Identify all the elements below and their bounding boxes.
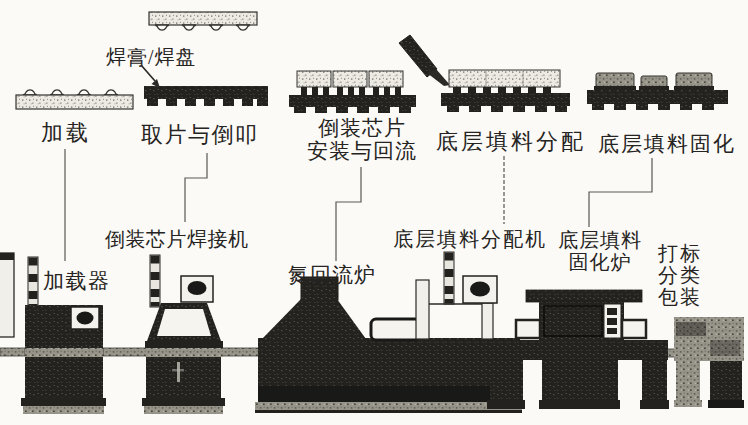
machine-cure-oven-art	[487, 290, 669, 409]
edge-structure-art	[0, 253, 14, 337]
connector-pick-flip	[185, 153, 207, 222]
machine-loader-label: 加载器	[43, 267, 111, 295]
board-flipped-chip-art	[149, 12, 257, 30]
board-mount-reflow-art	[289, 71, 416, 113]
callout-solder-paste-pad-label: 焊膏/焊盘	[106, 44, 197, 71]
bonder-signal-tower-icon	[150, 255, 160, 307]
step-loading-label: 加载	[41, 118, 91, 148]
machine-packaging-line1: 打标	[658, 242, 702, 264]
machine-packaging-line2: 分类	[658, 264, 702, 286]
machine-cure-oven-label: 底层填料 固化炉	[553, 229, 647, 273]
connector-cure	[589, 158, 652, 227]
board-underfill-cure-art	[587, 73, 728, 110]
connector-mount-reflow	[336, 167, 361, 261]
step-pick-flip-label: 取片与倒叩	[141, 120, 259, 150]
step-underfill-dispense-label: 底层填料分配	[436, 127, 586, 157]
step-mount-reflow-line1: 倒装芯片	[284, 117, 440, 140]
machine-cure-oven-line1: 底层填料	[553, 229, 647, 251]
board-underfill-dispense-art	[441, 70, 570, 112]
machine-reflow-oven-label: 氮回流炉	[288, 261, 376, 289]
oven-window-icon	[371, 319, 420, 340]
machine-dispenser-art	[429, 252, 497, 339]
assembly-line-diagram: 焊膏/焊盘 加载 取片与倒叩 倒装芯片 安装与回流 底层填料分配 底层填料固化 …	[0, 0, 748, 425]
step-mount-reflow-label: 倒装芯片 安装与回流	[284, 117, 440, 163]
machine-cure-oven-line2: 固化炉	[553, 251, 647, 273]
machine-dispenser-label: 底层填料分配机	[393, 226, 547, 253]
board-pick-flip-art	[144, 86, 268, 106]
board-loading-art	[16, 90, 133, 109]
dispenser-needle-icon	[399, 35, 450, 86]
step-underfill-cure-label: 底层填料固化	[598, 130, 736, 158]
machine-packaging-art	[674, 317, 744, 408]
cure-oven-window-icon	[544, 306, 602, 336]
machine-bonder-art	[142, 255, 225, 414]
machine-packaging-label: 打标 分类 包装	[658, 242, 702, 308]
dispenser-signal-tower-icon	[444, 252, 454, 304]
machine-bonder-label: 倒装芯片焊接机	[105, 226, 249, 253]
machine-packaging-line3: 包装	[658, 286, 702, 308]
step-mount-reflow-line2: 安装与回流	[284, 140, 440, 163]
loader-signal-tower-icon	[28, 257, 38, 309]
